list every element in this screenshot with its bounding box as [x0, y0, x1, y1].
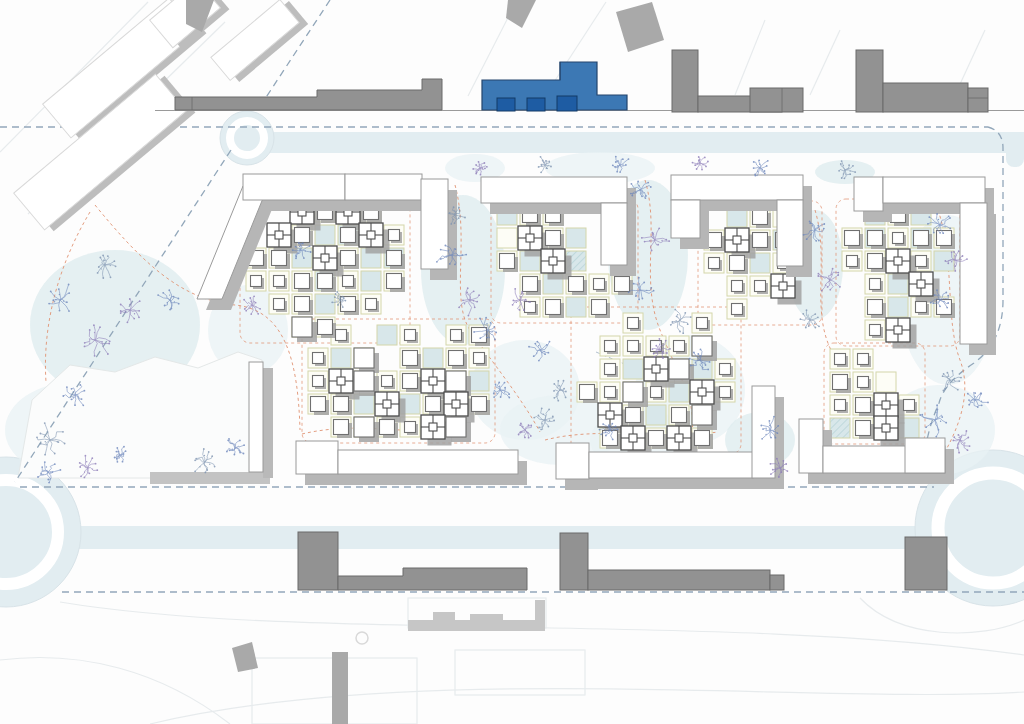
roundabout-top: [220, 111, 274, 165]
frame-a-vert: [421, 179, 448, 269]
slab-e-bar: [338, 450, 518, 474]
frame-c-top: [671, 175, 803, 200]
gray-annex-2: [770, 575, 784, 590]
blue-building-entrance: [497, 98, 515, 111]
frame-b-top: [481, 177, 627, 203]
blue-building-entrance: [557, 96, 577, 111]
gray-tower-2: [560, 533, 588, 590]
gray-bar-bottom-left: [332, 652, 348, 724]
site-plan: [0, 0, 1024, 724]
frame-a-top2: [345, 174, 422, 200]
blue-building-entrance: [527, 98, 545, 111]
slab-f-bar: [589, 452, 753, 478]
gray-block-3: [905, 537, 947, 590]
frame-d-top: [883, 177, 985, 203]
frame-b-vert: [601, 203, 627, 265]
frame-d-vert: [960, 203, 987, 344]
slab-f-block: [556, 443, 589, 479]
gray-tower-1: [298, 532, 338, 590]
slab-g-block2: [905, 438, 945, 473]
frame-d-left: [854, 177, 883, 211]
frame-c-vert: [777, 200, 803, 266]
frame-c-stub: [671, 200, 700, 238]
slab-g-block: [799, 419, 823, 473]
slab-e-block: [296, 441, 338, 474]
gray-wing-2: [588, 570, 770, 590]
site-plan-svg: [0, 0, 1024, 724]
frame-a-top: [243, 174, 345, 200]
